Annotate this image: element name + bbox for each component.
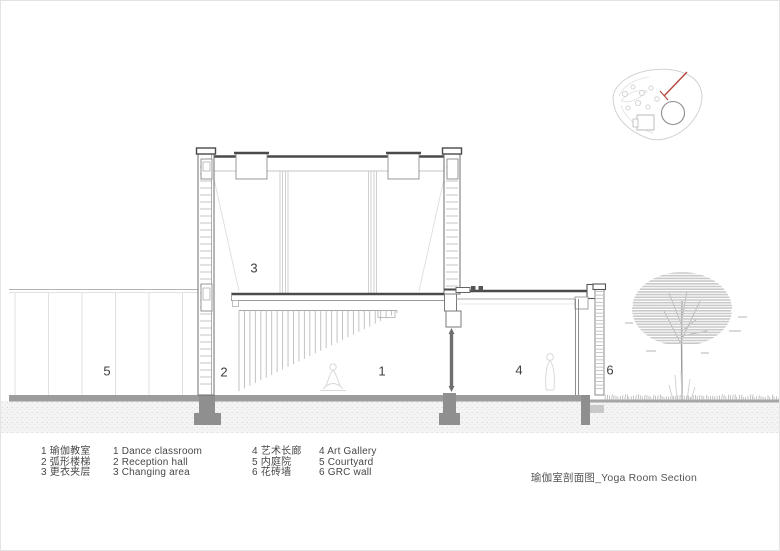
- legend-line: 6 GRC wall: [319, 468, 377, 479]
- drawing-title: 瑜伽室剖面图_Yoga Room Section: [531, 470, 697, 485]
- legend-line: 3 更衣夹层: [41, 468, 91, 479]
- ground: [1, 393, 780, 433]
- courtyard-wall: [9, 290, 198, 396]
- yoga-room-shell: [197, 148, 462, 395]
- room-marker-reception-hall: 2: [220, 365, 227, 380]
- room-marker-changing-area: 3: [250, 261, 257, 276]
- legend-en-right: 4 Art Gallery 5 Courtyard 6 GRC wall: [319, 447, 377, 479]
- glazing-mullion: [450, 333, 453, 387]
- room-marker-art-gallery: 4: [515, 363, 522, 378]
- legend-zh-right: 4 艺术长廊 5 内庭院 6 花砖墙: [252, 447, 302, 479]
- legend-line: 3 Changing area: [113, 468, 202, 479]
- room-marker-grc-wall: 6: [606, 363, 613, 378]
- legend-line: 6 花砖墙: [252, 468, 302, 479]
- staircase: [239, 311, 397, 392]
- person-standing-icon: [546, 354, 555, 390]
- person-yoga-icon: [320, 364, 346, 391]
- room-marker-courtyard: 5: [103, 364, 110, 379]
- section-cut-arrow: [660, 72, 687, 100]
- key-plan-icon: [613, 69, 702, 140]
- architectural-section-sheet: 1 2 3 4 5 6 1 瑜伽教室 2 弧形楼梯 3 更衣夹层 1 Dance…: [0, 0, 780, 551]
- legend-zh-left: 1 瑜伽教室 2 弧形楼梯 3 更衣夹层: [41, 447, 91, 479]
- grc-wall: [593, 284, 606, 395]
- legend-en-left: 1 Dance classroom 2 Reception hall 3 Cha…: [113, 447, 202, 479]
- room-marker-dance-classroom: 1: [378, 364, 385, 379]
- art-gallery: [444, 285, 597, 396]
- tree-icon: [625, 273, 747, 400]
